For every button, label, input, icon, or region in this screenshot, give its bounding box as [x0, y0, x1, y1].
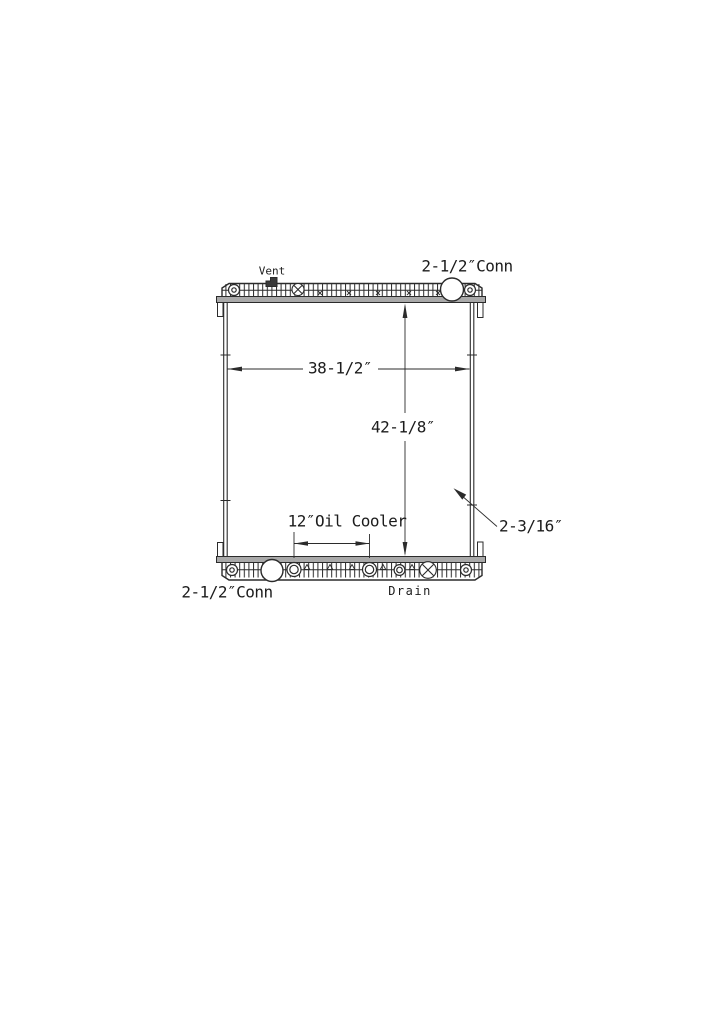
mount-bracket: [478, 303, 484, 318]
cap-fitting: [420, 562, 437, 579]
dimension-oil-cooler: [294, 532, 370, 558]
leader-depth: [454, 488, 498, 526]
cap-fitting: [292, 284, 304, 296]
drain-label: Drain: [388, 584, 432, 598]
oil-cooler-dim-label: 12″Oil Cooler: [288, 512, 407, 531]
mount-hole: [461, 565, 472, 576]
depth-dim-label: 2-3/16″: [499, 517, 563, 536]
vent-label: Vent: [259, 265, 286, 278]
height-dim-label: 42-1/8″: [371, 418, 435, 437]
oil-cooler-port: [363, 563, 377, 577]
top-tank: [217, 278, 486, 318]
radiator-drawing-page: Vent 2-1/2″Conn 38-1/2″ 42-1/8″ 12″Oil C…: [0, 0, 720, 1018]
drain-port: [394, 565, 405, 576]
side-channel-tick: [221, 355, 478, 505]
bottom-conn-label: 2-1/2″Conn: [181, 583, 272, 602]
vent-fitting: [266, 278, 277, 287]
top-conn-port: [441, 278, 464, 301]
mount-hole: [227, 565, 238, 576]
mount-bracket: [218, 303, 224, 317]
radiator-diagram: [0, 0, 720, 1018]
bottom-conn-port: [261, 560, 283, 582]
top-conn-label: 2-1/2″Conn: [421, 257, 512, 276]
mount-bracket: [478, 542, 484, 557]
mount-hole: [465, 285, 476, 296]
mount-hole: [229, 285, 240, 296]
oil-cooler-port: [287, 563, 301, 577]
bottom-tank: [217, 542, 486, 582]
mount-bracket: [218, 543, 224, 557]
width-dim-label: 38-1/2″: [308, 359, 372, 378]
